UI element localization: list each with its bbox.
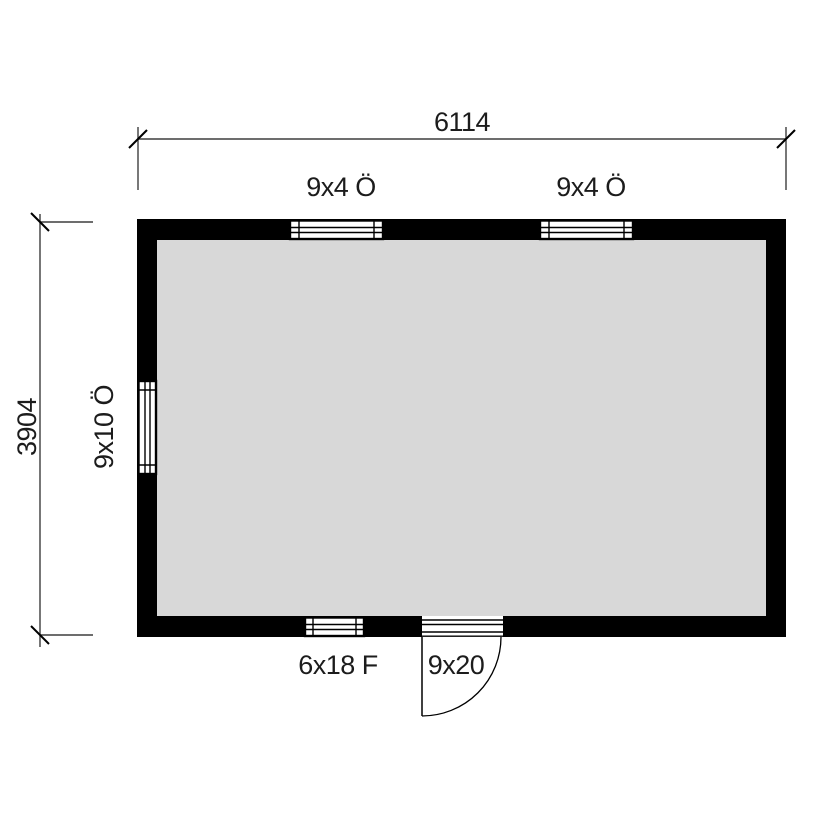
floor-plan-drawing: 6114 3904 9x4 Ö 9x4 Ö 9x10 Ö 6x18 F 9x20 — [0, 0, 828, 828]
window-top-right-label: 9x4 Ö — [556, 172, 626, 202]
window-frame — [290, 221, 383, 240]
window-frame — [540, 221, 633, 240]
window-left-label: 9x10 Ö — [89, 385, 119, 469]
door-opening — [422, 616, 503, 637]
dimension-height: 3904 — [12, 213, 93, 647]
door-label: 9x20 — [428, 650, 485, 680]
window-frame — [305, 618, 364, 637]
dimension-width-value: 6114 — [434, 107, 491, 137]
dimension-height-value: 3904 — [12, 397, 42, 456]
window-bottom — [305, 618, 364, 637]
building-shell — [137, 219, 786, 637]
window-bottom-label: 6x18 F — [298, 650, 378, 680]
dimension-width: 6114 — [129, 107, 795, 190]
window-frame — [139, 381, 157, 474]
window-top-right — [540, 221, 633, 240]
floor-area — [157, 240, 766, 616]
window-top-left — [290, 221, 383, 240]
floor-plan-page: 6114 3904 9x4 Ö 9x4 Ö 9x10 Ö 6x18 F 9x20 — [0, 0, 828, 828]
window-left — [139, 381, 157, 474]
window-top-left-label: 9x4 Ö — [306, 172, 376, 202]
